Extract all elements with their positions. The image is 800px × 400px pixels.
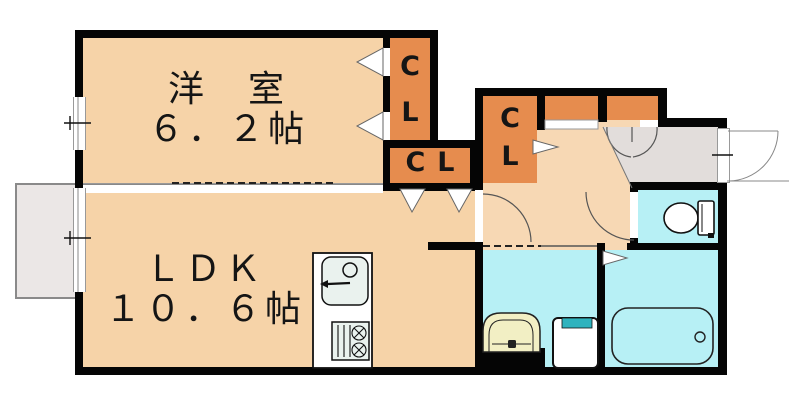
entry-storage-front xyxy=(545,120,598,129)
bathtub-icon xyxy=(612,308,713,364)
closet-cl2-label: CL xyxy=(390,143,470,183)
closet-cl1-label: C L xyxy=(390,44,430,136)
toilet-icon xyxy=(664,201,714,238)
washing-machine-icon xyxy=(553,318,598,368)
western-room-size: ６．２帖 xyxy=(88,110,368,150)
stove-icon xyxy=(332,322,369,360)
closet-cl3-label: C L xyxy=(483,100,537,176)
ldk-size: １０．６帖 xyxy=(80,290,330,330)
sliding-door-symbols xyxy=(83,183,597,246)
ldk-name: ＬＤＫ xyxy=(80,250,330,290)
western-room-name: 洋 室 xyxy=(88,70,368,110)
closet-letter: C xyxy=(390,44,430,90)
floor-plan: 洋 室 ６．２帖 ＬＤＫ １０．６帖 C L CL C L xyxy=(0,0,800,400)
closet-letter: L xyxy=(390,90,430,136)
closet-letter: C xyxy=(483,100,537,138)
ldk-label: ＬＤＫ １０．６帖 xyxy=(80,250,330,330)
closet-letter: L xyxy=(483,138,537,176)
closet-letters: CL xyxy=(390,143,470,183)
washbasin-icon xyxy=(483,313,540,352)
entrance-door-swing xyxy=(727,131,789,181)
western-room-label: 洋 室 ６．２帖 xyxy=(88,70,368,150)
